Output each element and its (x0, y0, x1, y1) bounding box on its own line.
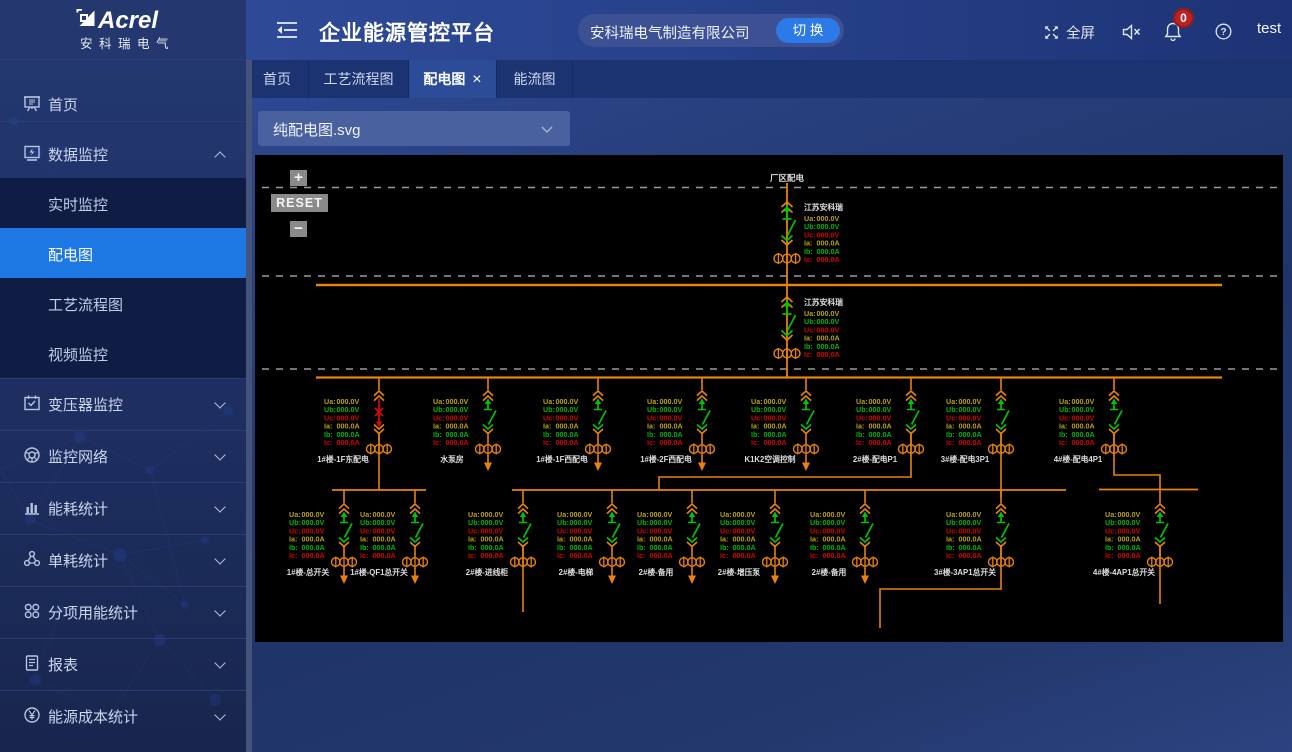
svg-text:4#楼-4AP1总开关: 4#楼-4AP1总开关 (1093, 567, 1155, 577)
svg-text:Acrel: Acrel (97, 8, 159, 34)
svg-text:000.0A: 000.0A (959, 551, 982, 560)
svg-text:Ic:: Ic: (804, 255, 812, 264)
svg-text:Ic:: Ic: (647, 438, 655, 447)
svg-text:Ic:: Ic: (751, 438, 759, 447)
svg-text:000.0A: 000.0A (556, 438, 579, 447)
svg-text:000.0A: 000.0A (817, 255, 840, 264)
svg-text:Ic:: Ic: (433, 438, 441, 447)
svg-text:1#楼-总开关: 1#楼-总开关 (287, 567, 330, 577)
svg-text:Ic:: Ic: (289, 551, 297, 560)
svg-text:1#楼-2F西配电: 1#楼-2F西配电 (640, 454, 692, 464)
svg-text:2#楼-配电P1: 2#楼-配电P1 (853, 454, 898, 464)
svg-text:Ic:: Ic: (810, 551, 818, 560)
svg-text:Ic:: Ic: (360, 551, 368, 560)
svg-text:000.0A: 000.0A (373, 551, 396, 560)
svg-text:Ic:: Ic: (856, 438, 864, 447)
svg-text:Ic:: Ic: (543, 438, 551, 447)
svg-text:Ic:: Ic: (720, 551, 728, 560)
svg-text:000.0A: 000.0A (302, 551, 325, 560)
svg-text:000.0A: 000.0A (481, 551, 504, 560)
svg-text:Ic:: Ic: (468, 551, 476, 560)
svg-text:Ic:: Ic: (1105, 551, 1113, 560)
svg-text:厂区配电: 厂区配电 (770, 173, 805, 183)
svg-text:000.0A: 000.0A (1118, 551, 1141, 560)
svg-text:000.0A: 000.0A (733, 551, 756, 560)
svg-text:3#楼-3AP1总开关: 3#楼-3AP1总开关 (934, 567, 996, 577)
svg-text:000.0A: 000.0A (823, 551, 846, 560)
svg-text:Ic:: Ic: (324, 438, 332, 447)
svg-text:000.0A: 000.0A (869, 438, 892, 447)
svg-text:Ic:: Ic: (946, 438, 954, 447)
svg-text:2#楼-增压泵: 2#楼-增压泵 (718, 567, 761, 577)
svg-text:?: ? (1220, 27, 1226, 38)
svg-text:000.0A: 000.0A (817, 350, 840, 359)
svg-text:000.0A: 000.0A (650, 551, 673, 560)
svg-text:Ic:: Ic: (637, 551, 645, 560)
svg-text:000.0A: 000.0A (446, 438, 469, 447)
svg-text:2#楼-进线柜: 2#楼-进线柜 (466, 567, 509, 577)
svg-text:000.0A: 000.0A (337, 438, 360, 447)
svg-text:000.0A: 000.0A (660, 438, 683, 447)
svg-text:Ic:: Ic: (804, 350, 812, 359)
svg-text:000.0A: 000.0A (764, 438, 787, 447)
svg-text:Ic:: Ic: (557, 551, 565, 560)
svg-text:1#楼-1F东配电: 1#楼-1F东配电 (317, 454, 369, 464)
svg-text:000.0A: 000.0A (1072, 438, 1095, 447)
svg-text:1#楼-QF1总开关: 1#楼-QF1总开关 (350, 567, 408, 577)
svg-text:江苏安科瑞: 江苏安科瑞 (804, 202, 843, 212)
svg-text:3#楼-配电3P1: 3#楼-配电3P1 (941, 454, 990, 464)
svg-text:000.0A: 000.0A (959, 438, 982, 447)
svg-text:K1K2空调控制: K1K2空调控制 (744, 454, 795, 464)
svg-text:Ic:: Ic: (1059, 438, 1067, 447)
svg-text:Ic:: Ic: (946, 551, 954, 560)
svg-text:2#楼-备用: 2#楼-备用 (812, 567, 847, 577)
svg-text:水泵房: 水泵房 (440, 454, 464, 464)
svg-text:1#楼-1F西配电: 1#楼-1F西配电 (536, 454, 588, 464)
svg-text:4#楼-配电4P1: 4#楼-配电4P1 (1054, 454, 1103, 464)
svg-text:000.0A: 000.0A (570, 551, 593, 560)
svg-text:江苏安科瑞: 江苏安科瑞 (804, 297, 843, 307)
svg-text:2#楼-电梯: 2#楼-电梯 (559, 567, 594, 577)
svg-text:2#楼-备用: 2#楼-备用 (639, 567, 674, 577)
